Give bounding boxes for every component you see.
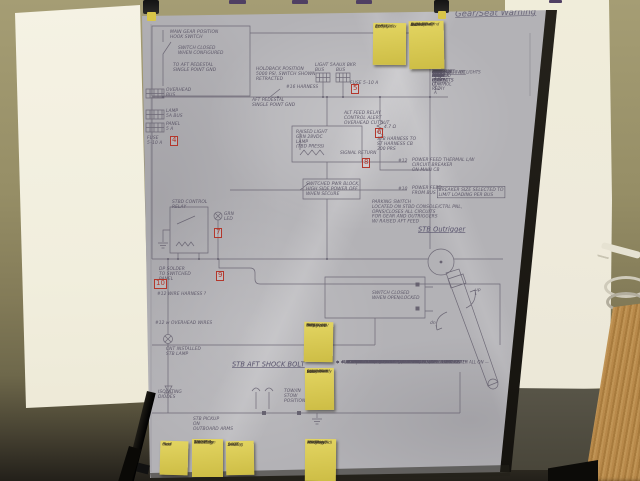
label-switched-block: SWITCHED PWR BLOCK, HIGH SIDE POWER OFF … xyxy=(306,181,360,196)
outrigger-title: STB Outrigger xyxy=(418,226,465,234)
revision-flag: 4 xyxy=(170,136,178,146)
label-feed12-text: POWER FEED THERMAL L/W CIRCUIT BREAKER O… xyxy=(412,157,475,172)
checklist-line: CIRCUIT AND SHAKER. SEE AS TAG IN/WIRE T… xyxy=(336,360,460,365)
label-light-bus: LIGHT 5A BUS xyxy=(315,62,336,72)
sticky-note: WRLRelay: PotRoll off +Sch dn/RndStows? … xyxy=(305,368,334,410)
pin-tab xyxy=(549,0,562,3)
label-raised-light: RAISED LIGHT GRN 28VDC LAMP (TBD PRESS) xyxy=(296,129,328,149)
label-overhead-bus: OVERHEAD BUS xyxy=(166,87,191,97)
note-text-line: w/SR Rel Grnd xyxy=(411,22,440,27)
sticky-note: SESTID FixBody?(JJ RelysRun it PotArr? xyxy=(373,23,406,65)
pin-tab xyxy=(356,0,372,4)
shock-bolt-title: STB AFT SHOCK BOLT xyxy=(232,361,305,369)
sticky-note: Selut3m(L)yDPDTSw Flag xyxy=(226,441,255,475)
label-isolating-diodes: ISOLATING DIODES xyxy=(158,389,182,399)
label-overhead-wires: #12 w OVERHEAD WIRES xyxy=(155,320,212,325)
revision-flag: 7 xyxy=(214,228,222,238)
label-aft-gnd: AFT PEDESTAL SINGLE POINT GND xyxy=(252,97,295,107)
label-feed12-tag: #12 xyxy=(398,158,407,163)
label-aux-bus: AUX BKR BUS xyxy=(336,62,356,72)
revision-flag: 8 xyxy=(362,158,370,168)
label-dn-arrow: dn xyxy=(430,320,436,325)
label-tow-stow: TOW/IN STOW POSITION xyxy=(284,388,305,403)
note-text-line: w-ll Blvg xyxy=(307,440,324,445)
label-harness16: #16 HARNESS xyxy=(286,84,318,89)
label-feed10-tag: #10 xyxy=(398,186,407,191)
label-wire-harness: #12 WIRE HARNESS ? xyxy=(157,291,206,296)
label-up-arrow: up xyxy=(475,287,481,292)
note-text-line: Arr? xyxy=(375,24,383,29)
label-stb-harness: STB HARNESS TO ST HARNESS CB 300 PRS xyxy=(377,136,416,151)
label-signal-return: SIGNAL RETURN xyxy=(340,150,376,155)
note-text-line: State indic xyxy=(307,369,328,374)
pin-tab xyxy=(229,0,246,4)
label-to-aft: TO AFT PEDESTAL SINGLE POINT GND xyxy=(173,62,216,72)
total-value: ≈ 4.5 / 5.2 A xyxy=(434,73,440,96)
label-resistor: 4.7 Ω xyxy=(384,124,396,129)
revision-flag: 5 xyxy=(351,84,359,94)
sticky-note: WRLenergizedRley = 28Vto PJ up +Hold, Ro… xyxy=(304,322,334,363)
label-cnt-installed: CNT INSTALLED STB LAMP xyxy=(166,346,201,356)
revision-flag: 10 xyxy=(154,279,167,289)
label-panel-bus: PANEL 5 A xyxy=(166,121,180,131)
label-alt-feed: ALT FEED RELAY CONTROL ALERT OVERHEAD CU… xyxy=(344,110,389,125)
photo-scene: Gear/Seat Warning MAIN GEAR POSITION HOO… xyxy=(0,0,640,481)
sticky-note: next tonread bay?revGr ly bkshit/Pow/Ran… xyxy=(305,439,336,481)
note-text-line: Sw Flag xyxy=(228,442,244,447)
note-text-line: Pins-B off xyxy=(306,323,325,328)
label-stbd-relay: STBD CONTROL RELAY xyxy=(172,199,207,209)
label-parking-switch: PARKING SWITCH LOCATED ON STBD CONSOLE/C… xyxy=(372,199,462,224)
label-breaker-note: BREAKER SIZE SELECTED TO LIMIT LOADING P… xyxy=(437,186,505,198)
label-switch-open: SWITCH CLOSED WHEN OPEN/LOCKED xyxy=(372,290,420,300)
pin-tab xyxy=(292,0,308,4)
label-grn-led: GRN LED xyxy=(224,211,234,221)
easel-clamp xyxy=(136,463,150,475)
note-text-line: note Rug xyxy=(194,440,212,445)
binder-clip-left-tip xyxy=(147,12,156,21)
label-stb-pickup: STB PICKUP ON OUTBOARD ARMS xyxy=(193,416,233,431)
sticky-note: Midway,N Dr & PotRe inf fineDist?Cut off… xyxy=(409,21,445,70)
revision-flag: 6 xyxy=(375,128,383,138)
revision-flag: 9 xyxy=(216,271,224,281)
sticky-note: 1 h st3w/3w FanBNC wblWiresTrayWireCodsn… xyxy=(192,439,223,477)
label-holdback: HOLDBACK POSITION 5000 PSI, SWITCH SHOWN… xyxy=(256,66,315,81)
label-switch-cfg: SWITCH CLOSED WHEN CONFIGURED xyxy=(178,45,223,55)
binder-clip-center-tip xyxy=(438,11,446,19)
load-table-note: @ 28 VDC — NO LIGHTS xyxy=(432,70,481,75)
label-fuse-left: FUSE 5–10 A xyxy=(147,135,162,145)
label-main-gear: MAIN GEAR POSITION HOOK SWITCH xyxy=(170,29,218,39)
label-lamp-bus: LAMP 5A BUS xyxy=(166,108,183,118)
note-text-line: files xyxy=(162,442,170,447)
sticky-note: mednextCut-lfiles xyxy=(160,441,189,476)
